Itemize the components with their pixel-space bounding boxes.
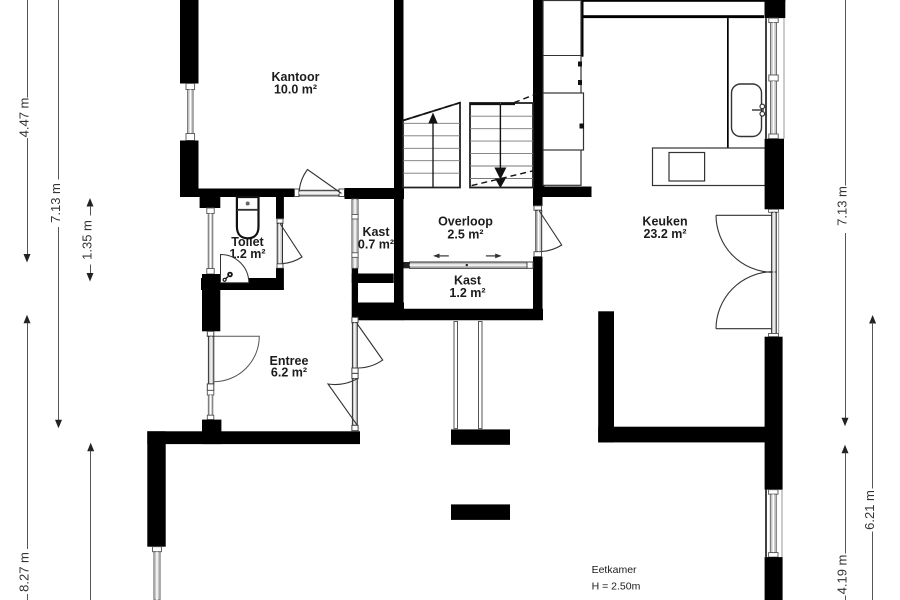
svg-text:6.2 m²: 6.2 m²: [271, 366, 307, 380]
svg-text:H = 2.50m: H = 2.50m: [592, 581, 641, 593]
svg-text:1.2 m²: 1.2 m²: [449, 286, 485, 300]
svg-text:23.2 m²: 23.2 m²: [643, 227, 686, 241]
svg-text:4.47 m: 4.47 m: [17, 98, 32, 138]
svg-text:4.19 m: 4.19 m: [835, 555, 850, 595]
svg-text:0.7 m²: 0.7 m²: [358, 237, 394, 251]
svg-text:10.0 m²: 10.0 m²: [274, 83, 317, 97]
svg-text:Eetkamer: Eetkamer: [592, 564, 637, 576]
svg-text:7.13 m: 7.13 m: [835, 186, 850, 226]
svg-text:8.27 m: 8.27 m: [17, 552, 32, 592]
svg-text:2.5 m²: 2.5 m²: [447, 227, 483, 241]
svg-text:7.13 m: 7.13 m: [48, 183, 63, 223]
svg-text:6.21 m: 6.21 m: [862, 490, 877, 530]
svg-text:1.35 m: 1.35 m: [80, 220, 95, 260]
